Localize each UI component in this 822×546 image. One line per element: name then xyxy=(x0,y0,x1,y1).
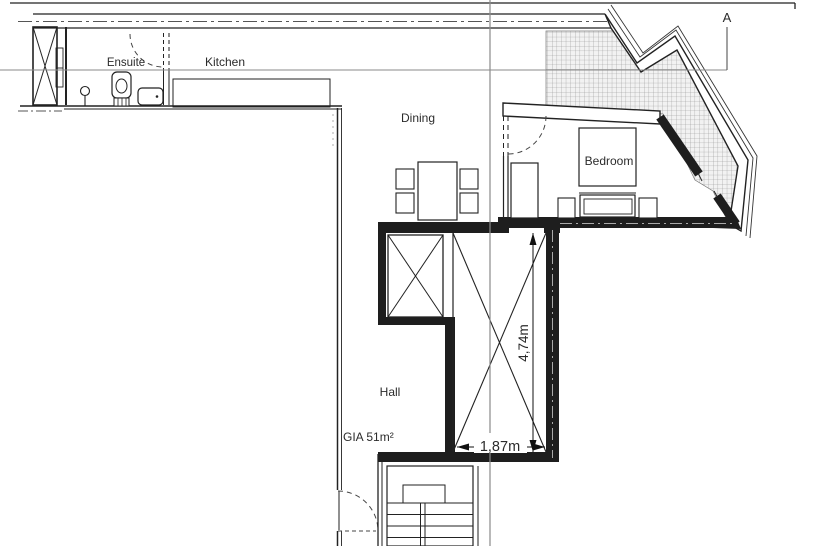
dim-label-horizontal: 1,87m xyxy=(480,439,520,455)
floor-plan: 4,74m 1,87m Ensuite Kitchen Dining Bedro… xyxy=(0,0,822,546)
hall-left-wall xyxy=(338,108,342,546)
gia-area-label: GIA 51m² xyxy=(343,430,394,444)
room-label-kitchen: Kitchen xyxy=(205,55,245,69)
floor-plan-svg: 4,74m 1,87m Ensuite Kitchen Dining Bedro… xyxy=(0,0,822,546)
lift-shaft-cross-box xyxy=(33,27,63,105)
dim-label-vertical: 4,74m xyxy=(516,324,531,362)
toilet xyxy=(112,72,131,106)
wash-basin xyxy=(138,88,163,105)
bed xyxy=(579,128,636,217)
entrance-door xyxy=(338,491,378,531)
staircase xyxy=(378,454,478,546)
ensuite-walls xyxy=(20,27,342,109)
dimension-vertical: 4,74m xyxy=(516,233,537,452)
section-marker-label: A xyxy=(723,10,732,25)
room-label-ensuite: Ensuite xyxy=(107,57,145,69)
bedroom-door-swing xyxy=(508,116,546,154)
room-label-dining: Dining xyxy=(401,111,435,125)
room-label-bedroom: Bedroom xyxy=(585,154,634,168)
kitchen-counter xyxy=(173,79,330,107)
dining-table xyxy=(418,162,457,220)
pedestal xyxy=(81,87,90,107)
wall-centerlines xyxy=(553,224,736,459)
wardrobe xyxy=(511,163,538,218)
room-label-hall: Hall xyxy=(380,385,401,399)
top-boundary-lines xyxy=(10,3,795,28)
